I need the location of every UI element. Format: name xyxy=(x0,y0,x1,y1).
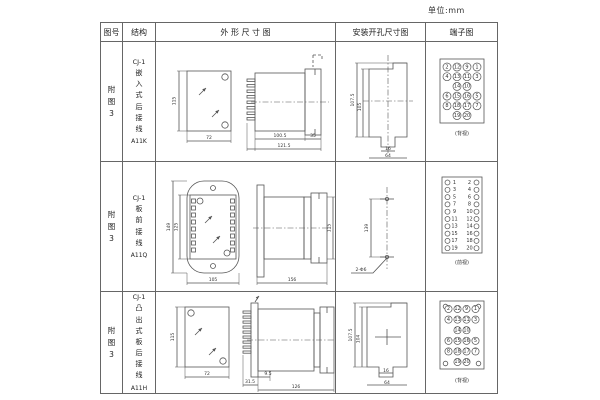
svg-text:12: 12 xyxy=(453,64,459,70)
svg-text:16: 16 xyxy=(466,230,472,236)
svg-text:16: 16 xyxy=(463,93,469,99)
svg-text:18: 18 xyxy=(454,348,460,354)
mounting-cell-1: 107.5 105 16 64 xyxy=(336,42,426,162)
svg-text:14: 14 xyxy=(454,327,460,333)
terminal-view-label: (背视) xyxy=(455,130,469,137)
svg-text:17: 17 xyxy=(451,238,457,244)
svg-text:2: 2 xyxy=(445,64,448,70)
terminal-cell-3: 2129141311314106151658181771920 (背视) xyxy=(426,292,498,394)
svg-text:3: 3 xyxy=(452,187,455,193)
outline-cell-1: 115 72 100.5 xyxy=(156,42,336,162)
structure-desc: 嵌入式后接线 xyxy=(136,68,143,135)
svg-text:1: 1 xyxy=(473,306,476,312)
dim-cutout-width: 64 xyxy=(384,380,390,386)
dim-total-depth: 126 xyxy=(291,384,300,390)
svg-text:11: 11 xyxy=(463,73,469,79)
terminal-columns: 1234567891011121314151617181920 xyxy=(445,179,479,251)
dim-front-height: 115 xyxy=(171,96,177,105)
dim-front-width: 72 xyxy=(204,371,210,377)
table-row: 附图3 CJ-1 嵌入式后接线 A11K xyxy=(101,42,498,162)
mounting-cell-3: 107.5 104 16 64 xyxy=(336,292,426,394)
dim-cutout-outer: 107.5 xyxy=(350,93,356,106)
structure-code: A11H xyxy=(131,385,147,392)
svg-text:5: 5 xyxy=(475,93,478,99)
col-header-outline: 外 形 尺 寸 图 xyxy=(156,23,336,42)
svg-text:6: 6 xyxy=(445,93,448,99)
svg-text:15: 15 xyxy=(451,230,457,236)
front-view: 115 72 xyxy=(171,71,231,143)
structure-code: A11K xyxy=(131,138,147,145)
terminal-cell-2: 1234567891011121314151617181920 (前视) xyxy=(426,162,498,292)
structure-cell-2: CJ-1 板前接线 A11Q xyxy=(123,162,156,292)
outline-drawing-a11q: 149 125 105 xyxy=(157,163,335,291)
svg-text:9: 9 xyxy=(465,64,468,70)
model-name: CJ-1 xyxy=(133,293,146,301)
outline-cell-2: 149 125 105 xyxy=(156,162,336,292)
unit-label: 单位:mm xyxy=(428,5,465,16)
dim-front-height: 115 xyxy=(170,332,176,341)
table-row: 附图3 CJ-1 板前接线 A11Q xyxy=(101,162,498,292)
dim-cutout-outer: 107.5 xyxy=(348,328,354,341)
svg-text:15: 15 xyxy=(453,93,459,99)
svg-text:20: 20 xyxy=(466,245,472,251)
terminal-grid: 2129141311314106151658181771920 xyxy=(443,63,481,120)
svg-text:4: 4 xyxy=(467,187,470,193)
svg-text:17: 17 xyxy=(463,103,469,109)
svg-text:13: 13 xyxy=(453,73,459,79)
svg-text:20: 20 xyxy=(463,359,469,365)
structure-desc: 凸出式板后接线 xyxy=(136,303,143,381)
svg-text:19: 19 xyxy=(451,245,457,251)
table-row: 附图3 CJ-1 凸出式板后接线 A11H xyxy=(101,292,498,394)
svg-text:10: 10 xyxy=(463,327,469,333)
svg-text:5: 5 xyxy=(452,194,455,200)
svg-text:5: 5 xyxy=(473,337,476,343)
dim-plate-depth: 31.5 xyxy=(244,379,254,385)
svg-text:13: 13 xyxy=(451,223,457,229)
svg-text:14: 14 xyxy=(466,223,472,229)
dim-front-width: 72 xyxy=(206,135,212,141)
svg-text:2: 2 xyxy=(467,179,470,185)
figure-number: 附图3 xyxy=(101,209,122,245)
svg-text:3: 3 xyxy=(473,316,476,322)
dim-step-depth: 9.5 xyxy=(264,371,271,377)
dim-total-depth: 156 xyxy=(287,277,296,283)
side-view: 31.5 9.5 126 xyxy=(243,296,334,392)
structure-cell-1: CJ-1 嵌入式后接线 A11K xyxy=(123,42,156,162)
svg-text:1: 1 xyxy=(452,179,455,185)
front-view: 149 125 105 xyxy=(166,181,239,285)
figure-number: 附图3 xyxy=(101,84,122,120)
hole-spec-label: 2-Φ6 xyxy=(355,267,366,273)
figure-number: 附图3 xyxy=(101,325,122,361)
svg-text:7: 7 xyxy=(475,103,478,109)
mounting-cell-2: 139 2-Φ6 xyxy=(336,162,426,292)
dim-flange-height: 149 xyxy=(166,222,172,231)
figure-cell-1: 附图3 xyxy=(101,42,123,162)
svg-text:9: 9 xyxy=(464,306,467,312)
svg-text:8: 8 xyxy=(445,103,448,109)
outline-drawing-a11h: 115 72 xyxy=(157,293,335,393)
svg-text:20: 20 xyxy=(463,112,469,118)
dim-side-height: 115 xyxy=(326,223,332,232)
svg-text:9: 9 xyxy=(452,208,455,214)
outline-cell-3: 115 72 xyxy=(156,292,336,394)
outline-drawing-a11k: 115 72 100.5 xyxy=(157,43,335,161)
dim-total-depth: 121.5 xyxy=(277,143,290,149)
terminal-cell-1: 2129141311314106151658181771920 (背视) xyxy=(426,42,498,162)
svg-text:3: 3 xyxy=(475,73,478,79)
dim-cutout-width: 64 xyxy=(385,153,391,159)
mounting-hole-drawing-a11k: 107.5 105 16 64 xyxy=(337,43,425,161)
svg-text:8: 8 xyxy=(467,201,470,207)
dim-cutout-inner: 104 xyxy=(355,334,361,343)
dim-notch: 16 xyxy=(385,146,391,152)
svg-text:15: 15 xyxy=(454,337,460,343)
dim-cutout-inner: 105 xyxy=(357,102,363,111)
svg-text:16: 16 xyxy=(463,337,469,343)
svg-text:1: 1 xyxy=(475,64,478,70)
model-name: CJ-1 xyxy=(133,194,146,202)
svg-text:17: 17 xyxy=(463,348,469,354)
svg-text:14: 14 xyxy=(453,83,459,89)
mounting-hole-drawing-a11h: 107.5 104 16 64 xyxy=(337,293,425,393)
svg-text:2: 2 xyxy=(446,306,449,312)
svg-text:10: 10 xyxy=(466,208,472,214)
svg-text:4: 4 xyxy=(446,316,449,322)
svg-text:4: 4 xyxy=(445,73,448,79)
dim-hole-spacing: 139 xyxy=(364,223,370,232)
svg-text:18: 18 xyxy=(453,103,459,109)
col-header-figure: 图号 xyxy=(101,23,123,42)
dim-front-width: 105 xyxy=(208,277,217,283)
col-header-terminal: 端子图 xyxy=(426,23,498,42)
svg-text:12: 12 xyxy=(466,216,472,222)
svg-text:13: 13 xyxy=(454,316,460,322)
mounting-hole-drawing-a11q: 139 2-Φ6 xyxy=(337,163,425,291)
svg-text:7: 7 xyxy=(473,348,476,354)
drawing-table: 图号 结构 外 形 尺 寸 图 安装开孔尺寸图 端子图 附图3 CJ-1 嵌入式… xyxy=(100,22,498,394)
terminal-diagram-a11q: 1234567891011121314151617181920 (前视) xyxy=(427,163,497,291)
side-view: 156 115 xyxy=(253,185,335,285)
scanned-drawing-page: 单位:mm 图号 结构 外 形 尺 寸 图 安装开孔尺寸图 端子图 附图3 CJ… xyxy=(0,0,600,400)
dim-flange-depth: 35 xyxy=(310,133,316,139)
svg-text:19: 19 xyxy=(454,359,460,365)
dim-body-height: 125 xyxy=(173,222,179,231)
model-name: CJ-1 xyxy=(133,58,146,66)
svg-text:19: 19 xyxy=(453,112,459,118)
structure-code: A11Q xyxy=(131,252,147,259)
svg-text:6: 6 xyxy=(446,337,449,343)
svg-text:18: 18 xyxy=(466,238,472,244)
terminal-view-label: (背视) xyxy=(455,377,469,384)
dim-body-depth: 100.5 xyxy=(273,133,286,139)
figure-cell-2: 附图3 xyxy=(101,162,123,292)
col-header-structure: 结构 xyxy=(123,23,156,42)
terminal-diagram-a11h: 2129141311314106151658181771920 (背视) xyxy=(427,293,497,393)
svg-text:12: 12 xyxy=(454,306,460,312)
side-view: 100.5 35 121.5 xyxy=(247,55,329,151)
front-view: 115 72 xyxy=(170,307,229,379)
terminal-diagram-a11k: 2129141311314106151658181771920 (背视) xyxy=(427,43,497,161)
terminal-grid: 2129141311314106151658181771920 xyxy=(444,305,478,365)
structure-cell-3: CJ-1 凸出式板后接线 A11H xyxy=(123,292,156,394)
svg-text:11: 11 xyxy=(451,216,457,222)
dim-notch: 16 xyxy=(383,368,389,374)
figure-cell-3: 附图3 xyxy=(101,292,123,394)
header-row: 图号 结构 外 形 尺 寸 图 安装开孔尺寸图 端子图 xyxy=(101,23,498,42)
svg-text:8: 8 xyxy=(446,348,449,354)
svg-text:11: 11 xyxy=(463,316,469,322)
svg-text:6: 6 xyxy=(467,194,470,200)
col-header-mounting: 安装开孔尺寸图 xyxy=(336,23,426,42)
terminal-view-label: (前视) xyxy=(455,259,469,266)
svg-text:10: 10 xyxy=(463,83,469,89)
svg-text:7: 7 xyxy=(452,201,455,207)
structure-desc: 板前接线 xyxy=(136,204,143,249)
